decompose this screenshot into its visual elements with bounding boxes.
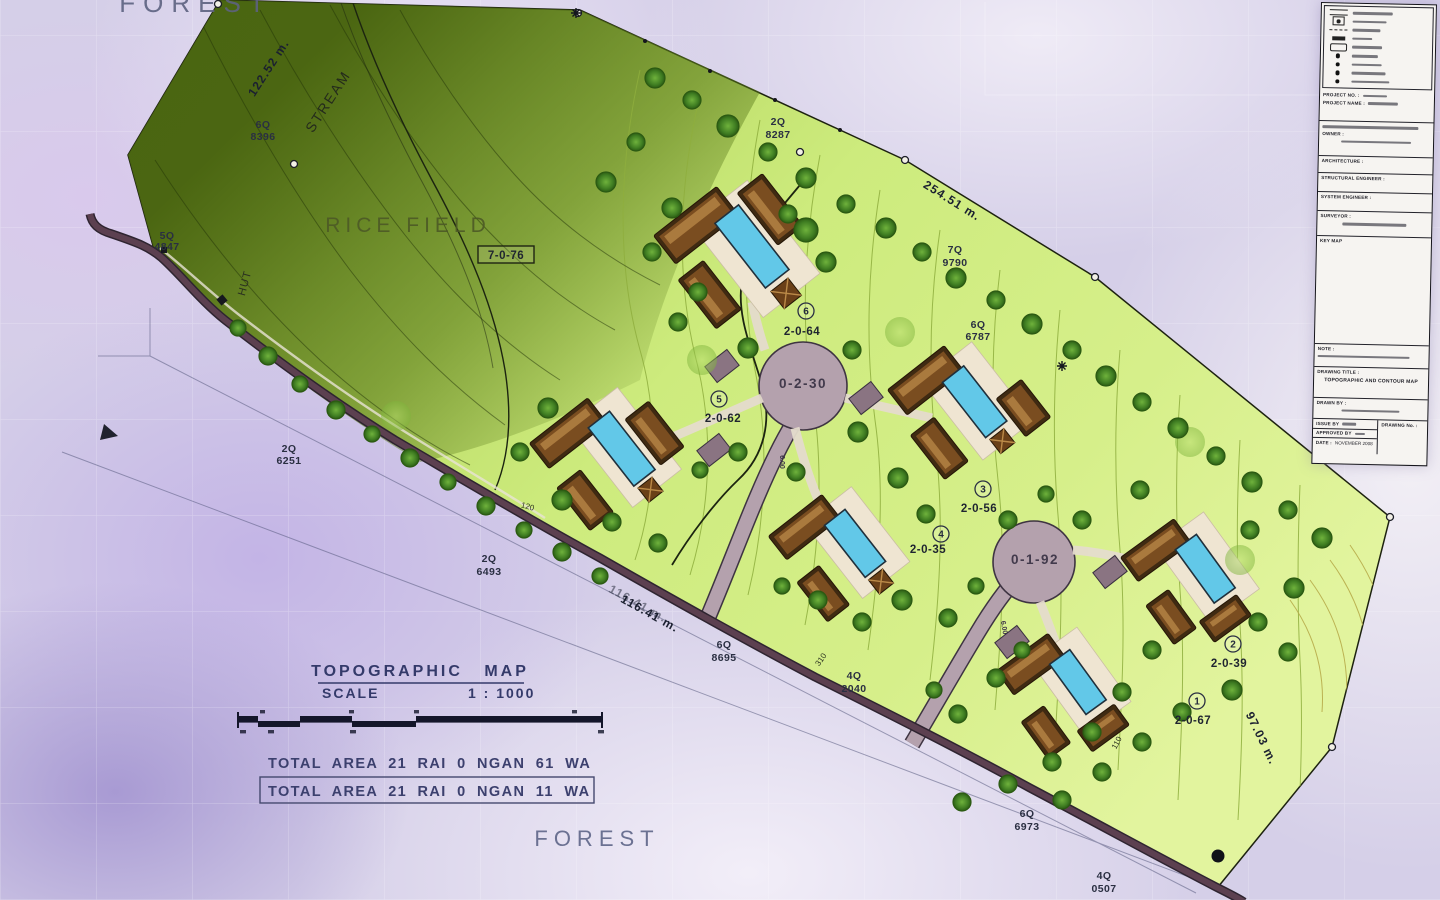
footer-title: TOPOGRAPHIC MAP — [311, 663, 529, 680]
owner-section: OWNER : — [1319, 121, 1434, 158]
legend-label-smudge — [1352, 63, 1382, 66]
svg-text:2-0-35: 2-0-35 — [910, 544, 946, 556]
bench-mark-dot — [1212, 850, 1225, 863]
svg-text:9790: 9790 — [943, 257, 968, 269]
svg-text:7Q: 7Q — [948, 244, 963, 256]
tree-icon — [1207, 447, 1225, 465]
tree-icon — [292, 376, 308, 392]
tree-icon — [230, 320, 246, 336]
tree-icon — [794, 218, 818, 242]
tree-icon — [1063, 341, 1081, 359]
rice-field-label: RICE FIELD — [325, 214, 491, 237]
tree-icon — [946, 268, 966, 288]
tree-icon — [987, 291, 1005, 309]
tree-icon — [816, 252, 836, 272]
note-section: NOTE : — [1314, 344, 1428, 369]
structural-section: STRUCTURAL ENGINEER : — [1318, 173, 1432, 194]
tree-icon — [892, 590, 912, 610]
tree-icon — [327, 401, 345, 419]
drawing-title-label: DRAWING TITLE : — [1317, 369, 1359, 375]
tree-icon — [953, 793, 971, 811]
tree-icon — [999, 511, 1017, 529]
tree-icon — [1113, 683, 1131, 701]
tree-icon — [538, 398, 558, 418]
svg-text:6Q: 6Q — [971, 319, 986, 331]
tree-icon — [843, 341, 861, 359]
tree-icon — [939, 609, 957, 627]
tree-icon — [683, 91, 701, 109]
tree-icon — [1242, 472, 1262, 492]
tree-icon — [692, 462, 708, 478]
tree-icon — [796, 168, 816, 188]
issue-by-label: ISSUE BY — [1316, 420, 1339, 426]
svg-text:4: 4 — [938, 530, 944, 541]
tree-icon — [1222, 680, 1242, 700]
svg-text:2-0-62: 2-0-62 — [705, 413, 741, 425]
svg-text:8287: 8287 — [766, 129, 791, 141]
legend-label-smudge — [1353, 12, 1393, 15]
drawn-by-label: DRAWN BY : — [1317, 400, 1347, 406]
svg-text:4Q: 4Q — [847, 670, 862, 682]
legend-label-smudge — [1351, 80, 1389, 83]
architecture-label: ARCHITECTURE : — [1322, 158, 1364, 164]
tree-icon — [876, 218, 896, 238]
scale-label: SCALE — [322, 685, 379, 701]
tree-icon — [643, 243, 661, 261]
svg-text:6: 6 — [803, 307, 809, 318]
tree-icon — [552, 490, 572, 510]
tree-icon — [759, 143, 777, 161]
tree-icon — [1053, 791, 1071, 809]
legend-label-smudge — [1352, 46, 1382, 49]
tree-icon — [949, 705, 967, 723]
tree-icon — [627, 133, 645, 151]
svg-text:6973: 6973 — [1015, 821, 1040, 833]
date-value: NOVEMBER 2008 — [1335, 440, 1373, 447]
svg-text:2-0-56: 2-0-56 — [961, 503, 997, 515]
surveyor-label: SURVEYOR : — [1320, 213, 1351, 219]
svg-text:2Q: 2Q — [482, 553, 497, 565]
tree-icon — [809, 591, 827, 609]
tree-icon — [717, 115, 739, 137]
tree-icon — [774, 578, 790, 594]
svg-text:6Q: 6Q — [256, 119, 271, 131]
tree-icon — [968, 578, 984, 594]
surveyor-section: SURVEYOR : — [1317, 211, 1431, 238]
svg-text:0507: 0507 — [1092, 883, 1117, 895]
drawing-no-label: DRAWING No. : — [1381, 422, 1417, 428]
legend-dot-symbol — [1326, 77, 1348, 86]
svg-text:2-0-39: 2-0-39 — [1211, 658, 1247, 670]
tree-icon — [1168, 418, 1188, 438]
legend-box — [1322, 5, 1434, 91]
tree-icon — [1133, 733, 1151, 751]
svg-text:6Q: 6Q — [1020, 808, 1035, 820]
svg-text:2040: 2040 — [842, 683, 867, 695]
svg-text:6Q: 6Q — [717, 639, 732, 651]
tree-icon — [1241, 521, 1259, 539]
culdesac-b-label: 0-1-92 — [1011, 552, 1059, 567]
tree-icon — [645, 68, 665, 88]
tree-icon — [729, 443, 747, 461]
key-map-section: KEY MAP — [1315, 236, 1431, 346]
drawing-title-section: DRAWING TITLE : TOPOGRAPHIC AND CONTOUR … — [1314, 367, 1429, 400]
tree-icon — [440, 474, 456, 490]
tree-icon — [1038, 486, 1054, 502]
project-section: PROJECT NO. : PROJECT NAME : — [1320, 90, 1435, 123]
tree-icon — [926, 682, 942, 698]
svg-text:2-0-67: 2-0-67 — [1175, 715, 1211, 727]
tree-icon — [516, 522, 532, 538]
svg-text:6493: 6493 — [477, 566, 502, 578]
tree-icon — [662, 198, 682, 218]
system-section: SYSTEM ENGINEER : — [1318, 192, 1432, 213]
svg-text:7-0-76: 7-0-76 — [488, 250, 524, 262]
tree-icon — [596, 172, 616, 192]
tree-icon — [853, 613, 871, 631]
road-width-a: 6.00 — [778, 455, 785, 469]
tree-icon — [553, 543, 571, 561]
tree-icon — [1096, 366, 1116, 386]
tree-icon — [1284, 578, 1304, 598]
total-area-1: TOTAL AREA 21 RAI 0 NGAN 61 WA — [268, 756, 591, 772]
tree-icon — [603, 513, 621, 531]
shrub-icon — [381, 401, 411, 431]
tree-icon — [1014, 642, 1030, 658]
topographic-map-drawing: FOREST RICE FIELD STREAM HUT FOREST 7-0-… — [0, 0, 1440, 900]
structural-label: STRUCTURAL ENGINEER : — [1321, 175, 1385, 181]
map-footer: TOPOGRAPHIC MAP SCALE 1 : 1000 — [237, 663, 604, 803]
legend-label-smudge — [1353, 20, 1387, 23]
svg-text:2-0-64: 2-0-64 — [784, 326, 820, 338]
svg-text:8695: 8695 — [712, 652, 737, 664]
drawn-by-section: DRAWN BY : — [1313, 398, 1427, 421]
svg-text:6251: 6251 — [277, 455, 302, 467]
shrub-icon — [885, 317, 915, 347]
legend-label-smudge — [1352, 55, 1378, 58]
tree-icon — [1073, 511, 1091, 529]
total-area-2: TOTAL AREA 21 RAI 0 NGAN 11 WA — [268, 784, 590, 800]
svg-text:1: 1 — [1194, 697, 1200, 708]
project-no-label: PROJECT NO. : — [1323, 92, 1360, 98]
tree-icon — [837, 195, 855, 213]
legend-label-smudge — [1352, 37, 1372, 40]
tree-icon — [689, 283, 707, 301]
site-plan-photo: FOREST RICE FIELD STREAM HUT FOREST 7-0-… — [0, 0, 1440, 900]
tree-icon — [1312, 528, 1332, 548]
tree-icon — [1249, 613, 1267, 631]
svg-text:4Q: 4Q — [1097, 870, 1112, 882]
tree-icon — [1043, 753, 1061, 771]
tree-icon — [401, 449, 419, 467]
legend-label-smudge — [1352, 29, 1380, 32]
tree-icon — [259, 347, 277, 365]
svg-text:3: 3 — [980, 485, 986, 496]
approved-by-label: APPROVED BY — [1316, 430, 1352, 436]
owner-label: OWNER : — [1322, 131, 1344, 137]
tree-icon — [1279, 643, 1297, 661]
tree-icon — [913, 243, 931, 261]
tree-icon — [987, 669, 1005, 687]
tree-icon — [1279, 501, 1297, 519]
tree-icon — [1131, 481, 1149, 499]
tree-icon — [779, 205, 797, 223]
drawing-title-value: TOPOGRAPHIC AND CONTOUR MAP — [1317, 377, 1425, 386]
shrub-icon — [1225, 545, 1255, 575]
legend-label-smudge — [1351, 72, 1385, 75]
tree-icon — [1133, 393, 1151, 411]
forest-top-label: FOREST — [119, 0, 272, 18]
title-block-footer-strip — [1312, 453, 1426, 465]
tree-icon — [787, 463, 805, 481]
project-name-label: PROJECT NAME : — [1323, 100, 1365, 107]
tree-icon — [738, 338, 758, 358]
svg-text:5: 5 — [716, 395, 722, 406]
tree-icon — [1093, 763, 1111, 781]
tree-icon — [888, 468, 908, 488]
svg-text:2Q: 2Q — [771, 116, 786, 128]
tree-icon — [1022, 314, 1042, 334]
tree-icon — [917, 505, 935, 523]
shrub-icon — [687, 345, 717, 375]
tree-icon — [649, 534, 667, 552]
title-block: PROJECT NO. : PROJECT NAME : OWNER : ARC… — [1311, 2, 1437, 466]
date-label: DATE : — [1316, 440, 1332, 446]
svg-text:2Q: 2Q — [282, 443, 297, 455]
tree-icon — [669, 313, 687, 331]
forest-bottom-label: FOREST — [534, 826, 659, 851]
culdesac-a-label: 0-2-30 — [779, 376, 827, 391]
svg-text:4847: 4847 — [155, 241, 180, 253]
note-label: NOTE : — [1318, 346, 1335, 351]
system-label: SYSTEM ENGINEER : — [1321, 194, 1371, 200]
tree-icon — [477, 497, 495, 515]
scale-value: 1 : 1000 — [468, 685, 535, 701]
signoff-section: ISSUE BY APPROVED BY DATE :NOVEMBER 2008… — [1313, 419, 1428, 455]
scale-bar — [237, 710, 604, 733]
svg-text:6787: 6787 — [966, 331, 991, 343]
survey-arrowhead — [100, 424, 118, 440]
tree-icon — [1143, 641, 1161, 659]
tree-icon — [999, 775, 1017, 793]
rice-field-area-tag: 7-0-76 — [478, 246, 534, 263]
tree-icon — [511, 443, 529, 461]
tree-icon — [364, 426, 380, 442]
svg-text:2: 2 — [1230, 640, 1236, 651]
tree-icon — [592, 568, 608, 584]
key-map-label: KEY MAP — [1320, 238, 1342, 243]
tree-icon — [848, 422, 868, 442]
tree-icon — [1083, 723, 1101, 741]
svg-text:8396: 8396 — [251, 131, 276, 143]
